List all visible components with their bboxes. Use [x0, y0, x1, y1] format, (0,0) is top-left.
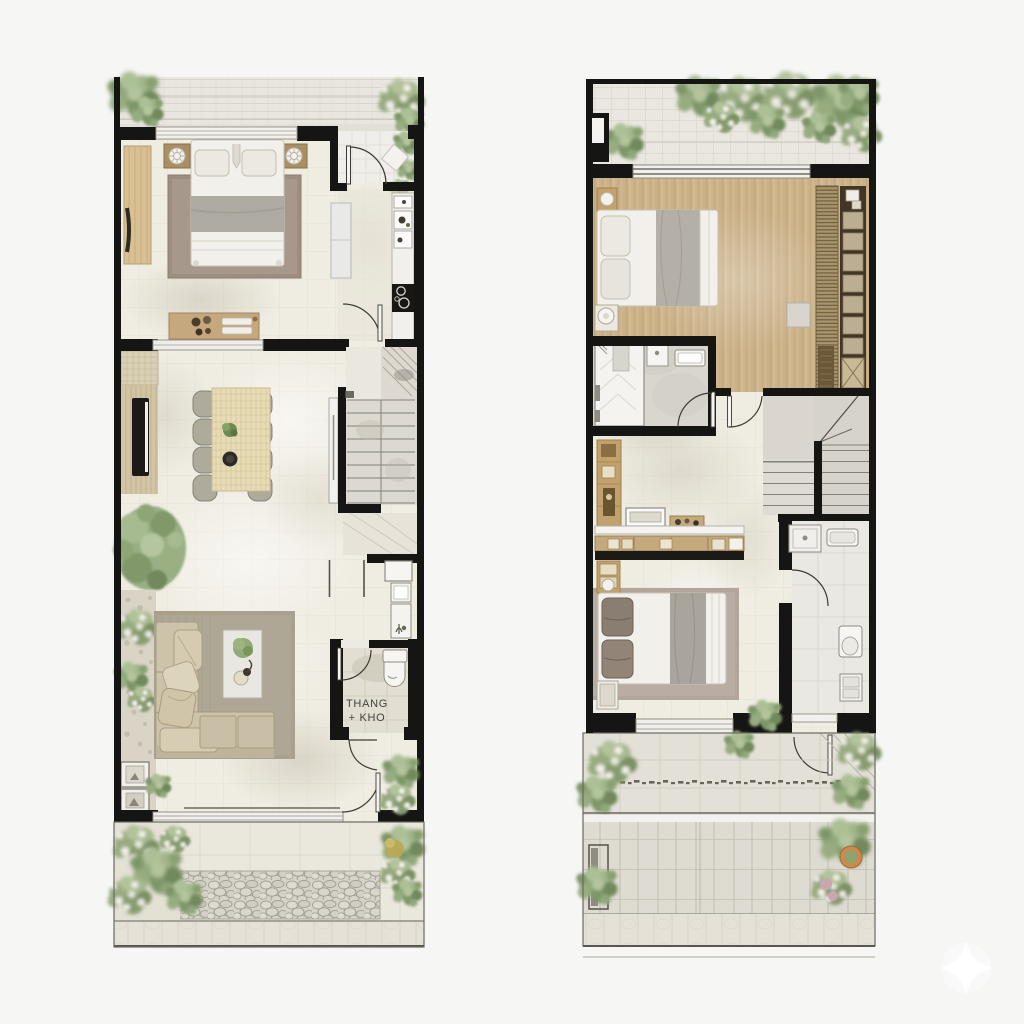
svg-text:THANG: THANG: [346, 698, 388, 710]
svg-text:+ KHO: + KHO: [349, 712, 386, 724]
